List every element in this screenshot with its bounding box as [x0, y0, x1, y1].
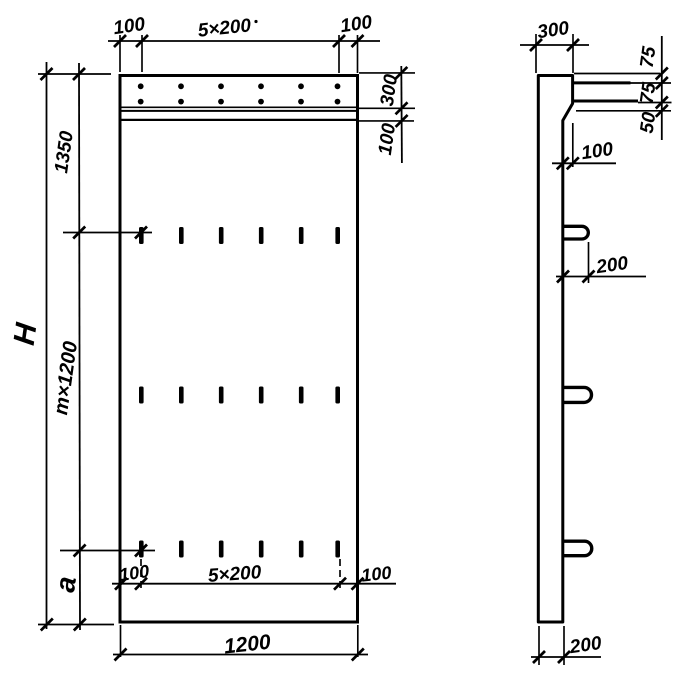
- svg-text:75: 75: [637, 81, 661, 105]
- svg-text:75: 75: [637, 45, 661, 69]
- svg-text:300: 300: [536, 18, 571, 43]
- svg-text:100: 100: [339, 12, 374, 37]
- svg-text:100: 100: [360, 563, 392, 586]
- svg-text:100: 100: [112, 14, 147, 39]
- svg-text:300: 300: [377, 73, 402, 108]
- svg-text:5×200: 5×200: [207, 562, 262, 587]
- svg-text:1200: 1200: [223, 631, 272, 659]
- svg-text:100: 100: [118, 561, 151, 585]
- svg-text:100: 100: [580, 139, 615, 164]
- svg-text:50: 50: [637, 110, 661, 134]
- svg-text:100: 100: [375, 122, 400, 157]
